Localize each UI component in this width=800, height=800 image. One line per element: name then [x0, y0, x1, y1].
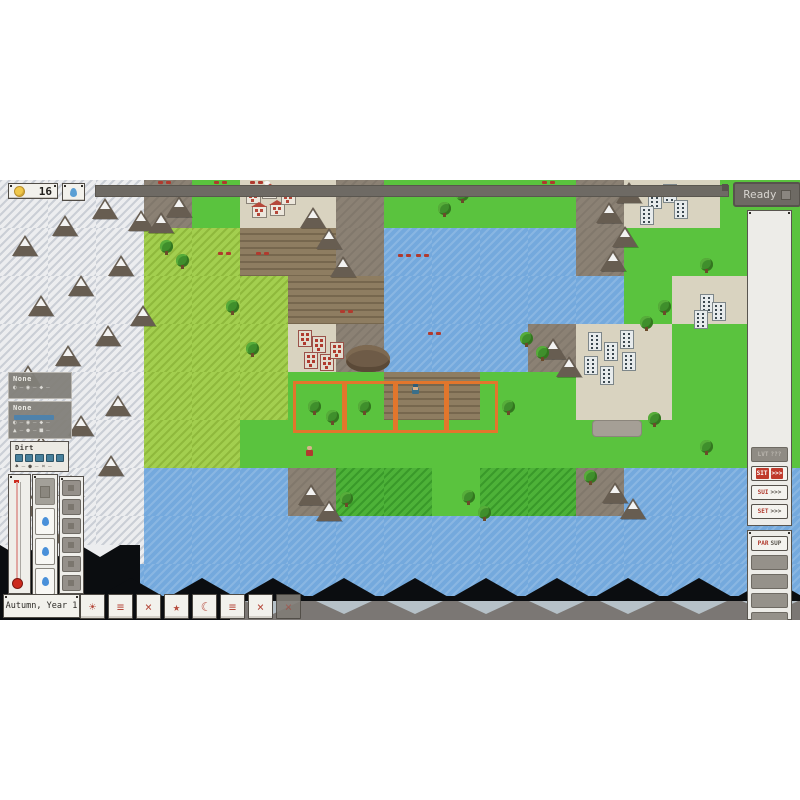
tree-sprite [658, 300, 671, 313]
tree-sprite [648, 412, 661, 425]
crop-sprite [416, 254, 421, 257]
stat-value-dash: – [46, 420, 50, 426]
stat-icon: ◆ [40, 420, 44, 426]
mountain-sprite [108, 255, 134, 276]
right-lower-panel: PARSUP [747, 530, 792, 620]
selected-tile[interactable] [446, 381, 498, 433]
map-tile[interactable] [528, 516, 577, 565]
tool-buttons-column [59, 476, 84, 594]
stat-icon: ● [28, 464, 32, 470]
selected-tile[interactable] [293, 381, 345, 433]
crop-sprite [214, 181, 219, 184]
selected-tile[interactable] [395, 381, 447, 433]
tree-sprite [700, 258, 713, 271]
map-tile[interactable] [480, 324, 529, 373]
tool-button-5[interactable] [62, 556, 81, 572]
tree-sprite [226, 300, 239, 313]
toolbar-button-close[interactable]: × [136, 594, 161, 619]
toolbar-button-menu-2[interactable]: ≡ [220, 594, 245, 619]
mountain-sprite [12, 235, 38, 256]
stat-icon: ¤ [42, 464, 46, 470]
map-tile[interactable] [288, 516, 337, 565]
gold-value: 16 [39, 185, 52, 198]
stat-icon: ■ [40, 428, 44, 434]
map-tile[interactable] [240, 276, 289, 325]
tree-sprite [520, 332, 533, 345]
lower-button-par[interactable]: PARSUP [751, 536, 788, 551]
right-action-panel: LVT???SIT>>>SUI>>>SET>>> [747, 210, 792, 526]
stat-value-dash: – [46, 385, 50, 391]
toolbar-button-star[interactable]: ★ [164, 594, 189, 619]
map-tile[interactable] [528, 420, 577, 469]
fertility-cell [15, 454, 23, 462]
slider-track [16, 482, 18, 583]
button-label: LVT [758, 449, 769, 460]
mountain-sprite [95, 325, 121, 346]
tree-sprite [700, 440, 713, 453]
map-edge-tooth [664, 578, 734, 598]
season-indicator: Autumn, Year 1 [3, 594, 80, 618]
mountain-sprite [596, 202, 622, 223]
stat-icon: ◐ [13, 420, 17, 426]
map-tile[interactable] [624, 516, 673, 565]
crop-sprite [218, 252, 223, 255]
drop-icon [42, 517, 49, 526]
crop-sprite [428, 332, 433, 335]
map-tile[interactable] [240, 468, 289, 517]
red-building-sprite [298, 330, 312, 347]
building-sprite [622, 352, 636, 371]
tree-sprite [160, 240, 173, 253]
map-edge-tooth [309, 578, 379, 598]
building-sprite [604, 342, 618, 361]
stat-value-dash: – [46, 428, 50, 434]
progress-bar-end [722, 184, 728, 191]
tree-sprite [176, 254, 189, 267]
sun-icon: ☀ [89, 600, 96, 614]
tree-sprite [584, 470, 597, 483]
stat-value-dash: – [48, 464, 52, 470]
panel-title: None [13, 375, 67, 383]
map-edge-tooth [451, 578, 521, 598]
mountain-sprite [330, 256, 356, 277]
tool-button-1[interactable] [62, 480, 81, 496]
crop-sprite [542, 181, 547, 184]
water-counter[interactable] [62, 183, 85, 201]
drop-icon [70, 188, 77, 197]
map-edge-underside [600, 601, 656, 614]
mountain-sprite [98, 455, 124, 476]
map-tile[interactable] [432, 324, 481, 373]
fertility-cell [56, 454, 64, 462]
close-icon: × [145, 600, 152, 614]
map-tile[interactable] [528, 228, 577, 277]
red-building-sprite [312, 336, 326, 353]
slider-track-2 [20, 482, 21, 583]
button-suffix: >>> [771, 506, 782, 517]
panel-title: Dirt [15, 444, 64, 452]
coin-icon [14, 186, 25, 197]
toolbar-button-sun[interactable]: ☀ [80, 594, 105, 619]
map-tile[interactable] [672, 372, 721, 421]
map-tile[interactable] [384, 228, 433, 277]
turn-progress-bar [95, 185, 729, 197]
map-tile[interactable] [192, 516, 241, 565]
button-label: SET [758, 506, 769, 517]
stat-value-dash: – [20, 428, 24, 434]
map-tile[interactable] [528, 468, 577, 517]
water-slot-cell[interactable] [35, 508, 55, 535]
map-tile[interactable] [576, 516, 625, 565]
red-building-sprite [330, 342, 344, 359]
stat-row: ♠–●–¤– [15, 464, 64, 470]
action-button-sui[interactable]: SUI>>> [751, 485, 788, 500]
mountain-sprite [600, 250, 626, 271]
fertility-cell [25, 454, 33, 462]
tree-sprite [340, 492, 353, 505]
building-sprite [600, 366, 614, 385]
gold-counter: 16 [8, 183, 58, 199]
mountain-sprite [105, 395, 131, 416]
map-edge-underside [387, 601, 443, 614]
building-sprite [640, 206, 654, 225]
mountain-sprite [52, 215, 78, 236]
stone-sprite [592, 420, 642, 437]
red-building-sprite [304, 352, 318, 369]
button-suffix: >>> [771, 487, 782, 498]
fertility-cell [46, 454, 54, 462]
map-edge-underside [529, 601, 585, 614]
water-cells-column [32, 474, 58, 596]
lower-button-blank-1[interactable] [751, 555, 788, 570]
map-edge-tooth [522, 578, 592, 598]
action-button-lvt: LVT??? [751, 447, 788, 462]
close-2-icon: × [257, 600, 264, 614]
info-panel-none-2[interactable]: None ◐–◉–◆–▲–●–■– [8, 401, 72, 439]
mountain-sprite [620, 498, 646, 519]
map-tile[interactable] [384, 516, 433, 565]
dirt-mound-sprite [346, 345, 390, 372]
mountain-sprite [28, 295, 54, 316]
stat-value-dash: – [20, 385, 24, 391]
map-edge-tooth [593, 578, 663, 598]
stat-value-dash: – [33, 428, 37, 434]
drop-icon [42, 577, 49, 586]
button-suffix: >>> [771, 468, 784, 479]
mountain-sprite [300, 207, 326, 228]
stat-icon: ▲ [13, 428, 17, 434]
stat-row: ◐–◉–◆– [13, 420, 67, 426]
slot-cell-empty[interactable] [35, 478, 55, 505]
tool-button-4[interactable] [62, 537, 81, 553]
fertility-cell [35, 454, 43, 462]
action-button-sit[interactable]: SIT>>> [751, 466, 788, 481]
map-edge-tooth [380, 578, 450, 598]
map-tile[interactable] [576, 276, 625, 325]
lower-button-blank-2[interactable] [751, 574, 788, 589]
map-tile[interactable] [144, 468, 193, 517]
mountain-sprite [316, 228, 342, 249]
map-tile[interactable] [144, 420, 193, 469]
building-sprite [620, 330, 634, 349]
ready-button[interactable]: Ready [733, 182, 800, 207]
crop-sprite [250, 181, 255, 184]
map-tile[interactable] [288, 276, 337, 325]
map-tile[interactable] [336, 516, 385, 565]
button-label: SUI [758, 487, 769, 498]
stat-icon: ◐ [13, 385, 17, 391]
stat-icon: ◆ [40, 385, 44, 391]
slider-handle[interactable] [12, 578, 23, 589]
map-tile[interactable] [480, 516, 529, 565]
mountain-sprite [316, 500, 342, 521]
map-tile[interactable] [480, 228, 529, 277]
crop-sprite [398, 254, 403, 257]
menu-icon: ≡ [117, 600, 124, 614]
map-tile[interactable] [528, 276, 577, 325]
info-panel-dirt[interactable]: Dirt ♠–●–¤– [10, 441, 69, 472]
building-sprite [584, 356, 598, 375]
map-tile[interactable] [192, 468, 241, 517]
map-edge-underside [316, 601, 372, 614]
menu-2-icon: ≡ [229, 600, 236, 614]
map-tile[interactable] [240, 372, 289, 421]
stat-row: ▲–●–■– [13, 428, 67, 434]
tree-sprite [502, 400, 515, 413]
tree-sprite [438, 202, 451, 215]
building-sprite [712, 302, 726, 321]
map-tile[interactable] [384, 276, 433, 325]
tree-sprite [246, 342, 259, 355]
map-tile[interactable] [432, 516, 481, 565]
map-tile[interactable] [672, 468, 721, 517]
map-tile[interactable] [144, 372, 193, 421]
lower-button-blank-3[interactable] [751, 593, 788, 608]
mountain-sprite [556, 356, 582, 377]
map-tile[interactable] [192, 324, 241, 373]
ready-checkbox[interactable] [781, 190, 791, 200]
enemy-unit[interactable] [306, 450, 313, 456]
star-icon: ★ [173, 600, 180, 614]
panel-title: None [13, 404, 67, 412]
crop-sprite [158, 181, 163, 184]
drop-icon [42, 547, 49, 556]
tool-button-6[interactable] [62, 575, 81, 591]
toolbar-button-extra: × [276, 594, 301, 619]
house-sprite [252, 206, 267, 218]
tree-sprite [640, 316, 653, 329]
tool-button-2[interactable] [62, 499, 81, 515]
crop-sprite [340, 310, 345, 313]
stat-row: ◐–◉–◆– [13, 385, 67, 391]
tree-sprite [462, 490, 475, 503]
map-tile[interactable] [672, 516, 721, 565]
map-tile[interactable] [192, 420, 241, 469]
map-edge-cliff [230, 601, 800, 620]
stat-value-dash: – [33, 385, 37, 391]
map-tile[interactable] [144, 516, 193, 565]
button-suffix: ??? [771, 449, 782, 460]
crop-sprite [256, 252, 261, 255]
map-tile[interactable] [192, 228, 241, 277]
stat-icon: ◉ [26, 420, 30, 426]
extra-icon: × [285, 600, 292, 614]
info-panel-none-1[interactable]: None ◐–◉–◆– [8, 372, 72, 399]
stat-value-dash: – [35, 464, 39, 470]
toolbar-button-moon[interactable]: ☾ [192, 594, 217, 619]
map-tile[interactable] [240, 516, 289, 565]
button-suffix: SUP [771, 538, 782, 549]
house-sprite [270, 204, 285, 216]
action-button-set[interactable]: SET>>> [751, 504, 788, 519]
moon-icon: ☾ [201, 600, 208, 614]
fertility-meter [15, 454, 64, 462]
season-label: Autumn, Year 1 [6, 601, 78, 611]
mountain-sprite [166, 196, 192, 217]
building-sprite [674, 200, 688, 219]
map-tile[interactable] [480, 276, 529, 325]
map-edge-underside [671, 601, 727, 614]
lower-button-blank-4[interactable] [751, 612, 788, 620]
map-tile[interactable] [432, 276, 481, 325]
selected-tile[interactable] [344, 381, 396, 433]
snow-edge-tooth [80, 545, 120, 557]
toolbar-button-menu[interactable]: ≡ [108, 594, 133, 619]
toolbar-button-close-2[interactable]: × [248, 594, 273, 619]
building-sprite [588, 332, 602, 351]
tree-sprite [536, 346, 549, 359]
map-tile[interactable] [384, 324, 433, 373]
tree-sprite [478, 506, 491, 519]
stat-icon: ♠ [15, 464, 19, 470]
button-label: SIT [756, 468, 769, 479]
map-tile[interactable] [672, 420, 721, 469]
map-tile[interactable] [336, 276, 385, 325]
game-window: 16 Ready LVT???SIT>>>SUI>>>SET>>> PARSUP… [0, 0, 800, 800]
stat-icon: ● [26, 428, 30, 434]
map-tile[interactable] [144, 324, 193, 373]
button-label: PAR [758, 538, 769, 549]
game-viewport[interactable]: 16 Ready LVT???SIT>>>SUI>>>SET>>> PARSUP… [0, 180, 800, 620]
water-slot-cell[interactable] [35, 568, 55, 595]
map-tile[interactable] [672, 324, 721, 373]
mountain-sprite [55, 345, 81, 366]
stat-icon: ◉ [26, 385, 30, 391]
mountain-sprite [612, 226, 638, 247]
map-tile[interactable] [528, 372, 577, 421]
map-edge-underside [458, 601, 514, 614]
ready-label: Ready [743, 188, 776, 201]
building-sprite [694, 310, 708, 329]
stat-value-dash: – [33, 420, 37, 426]
water-slot-cell[interactable] [35, 538, 55, 565]
tool-button-3[interactable] [62, 518, 81, 534]
map-tile[interactable] [240, 228, 289, 277]
thermometer-slider[interactable] [8, 474, 31, 594]
stat-value-dash: – [20, 420, 24, 426]
map-tile[interactable] [384, 468, 433, 517]
mountain-sprite [92, 198, 118, 219]
map-tile[interactable] [432, 228, 481, 277]
mountain-sprite [130, 305, 156, 326]
map-tile[interactable] [192, 372, 241, 421]
map-tile[interactable] [240, 420, 289, 469]
map-tile[interactable] [672, 228, 721, 277]
mountain-sprite [68, 275, 94, 296]
stat-value-dash: – [22, 464, 26, 470]
